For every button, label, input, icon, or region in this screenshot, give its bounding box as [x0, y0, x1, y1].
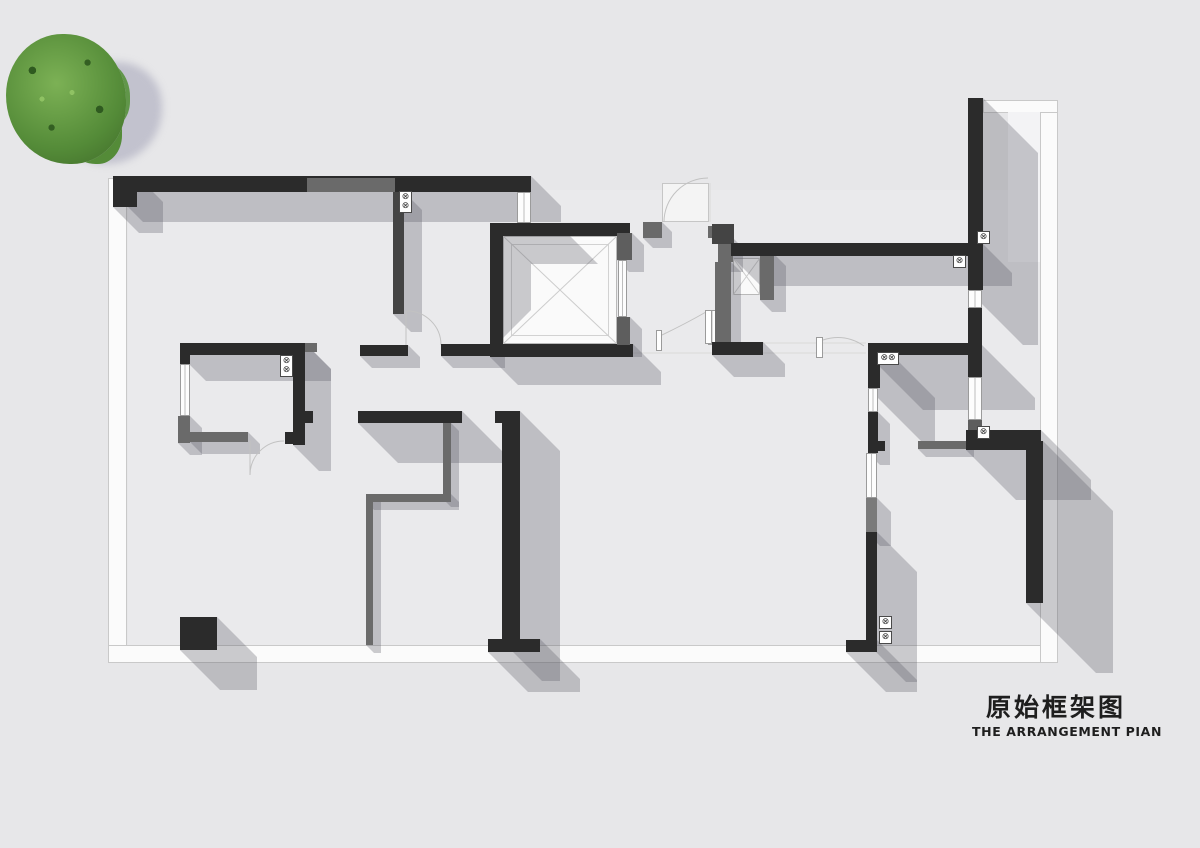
wall-lm-thin-h	[366, 494, 451, 502]
column-bottom-left	[180, 617, 217, 650]
wall-kitchen-main	[731, 243, 982, 256]
gas-symbol-double: ⊗⊗	[280, 355, 293, 377]
window-right-upper	[968, 290, 982, 308]
wall-lm-big-vertical	[502, 411, 520, 641]
gas-symbol: ⊗	[977, 231, 990, 244]
wall-elevator-left	[490, 223, 503, 357]
wall-elevator-bottom	[490, 344, 633, 357]
wall-stub-b	[305, 411, 313, 423]
title-block: 原始框架图 THE ARRANGEMENT PIAN	[972, 688, 1162, 739]
wall-br-right	[1026, 441, 1043, 603]
wall-room-left-top	[180, 343, 305, 355]
wall-br-bottom-left	[846, 640, 877, 652]
wall-br-left-gray	[866, 498, 877, 532]
wall-entry-vertical	[715, 262, 731, 344]
door-jamb-b	[705, 310, 712, 344]
wall-lm-base	[488, 639, 540, 652]
gas-symbol-double: ⊗⊗	[877, 352, 899, 365]
wall-kitchenroom-stub	[876, 441, 885, 451]
window-br-left	[866, 453, 877, 498]
wall-room-left-right	[293, 343, 305, 445]
gas-symbol: ⊗	[879, 616, 892, 629]
wall-room-left-bottom	[190, 432, 248, 442]
wall-hall-right	[441, 344, 493, 356]
gas-symbol: ⊗	[977, 426, 990, 439]
wall-lm-horizontal	[358, 411, 462, 423]
page-subtitle: THE ARRANGEMENT PIAN	[972, 724, 1162, 739]
wall-room-left-stub-top	[180, 355, 190, 364]
window-elevator-right	[618, 260, 627, 317]
wall-kitchenroom-left-a	[868, 343, 880, 388]
floor-plan-canvas: ⊗⊗ ⊗⊗ ⊗⊗ ⊗ ⊗ ⊗ ⊗ ⊗ 原始框架图 THE ARRANGEMENT…	[0, 0, 1200, 848]
wall-entry-base	[712, 342, 763, 355]
elevator-interior-shadow	[503, 236, 598, 338]
door-jamb-a	[656, 330, 662, 351]
gas-symbol: ⊗	[953, 255, 966, 268]
gas-symbol-double: ⊗⊗	[399, 191, 412, 213]
wall-elevator-top	[490, 223, 630, 236]
wall-hall-left	[360, 345, 408, 356]
wall-elevator-right-bottom	[617, 317, 630, 345]
wall-lm-thin-v2	[366, 494, 373, 645]
door-jamb-c	[816, 337, 823, 358]
page-title: 原始框架图	[986, 688, 1162, 724]
wall-kitchenroom-inner	[918, 441, 966, 449]
wall-room-left-corner	[178, 416, 190, 443]
window-right-lower	[968, 377, 982, 420]
wall-kitchen-step	[712, 224, 734, 244]
wall-right-vertical-top	[968, 98, 983, 290]
wall-top-gray-segment	[307, 178, 395, 192]
wall-br-left	[866, 532, 877, 642]
window-top-connector	[517, 192, 531, 223]
window-room-left	[180, 364, 190, 416]
wall-elevator-right-top	[617, 233, 632, 260]
wall-entry-block	[643, 222, 662, 238]
wall-lm-big-cap	[495, 411, 520, 423]
wall-duct-frame	[760, 254, 774, 300]
window-kitchenroom-left	[868, 388, 878, 412]
wall-stub-a	[305, 343, 317, 352]
gas-symbol: ⊗	[879, 631, 892, 644]
wall-room-left-stub-bottom	[285, 432, 293, 444]
wall-lm-thin-v1	[443, 423, 451, 499]
